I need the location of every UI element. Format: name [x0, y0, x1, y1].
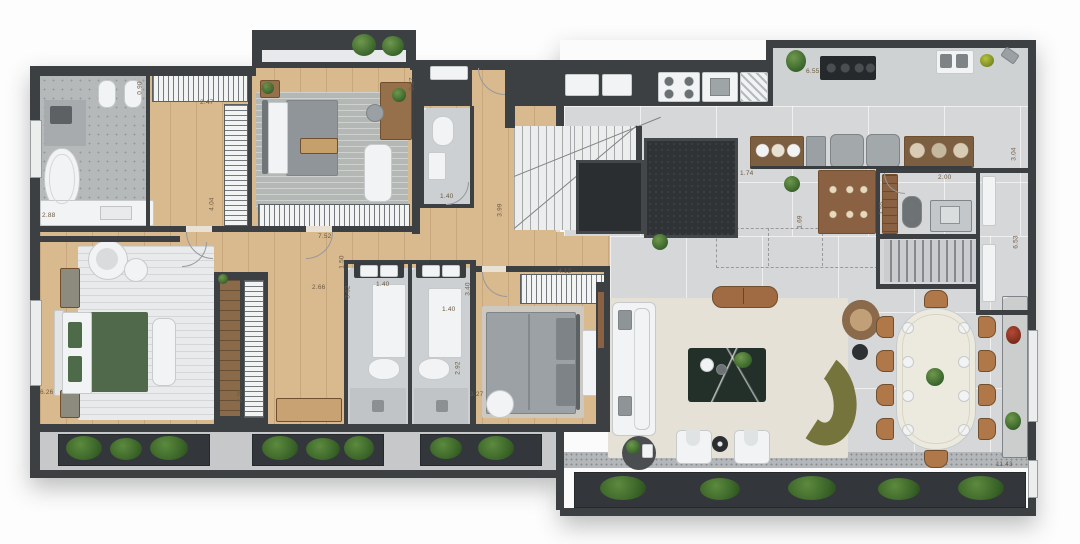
dimension-label: 3.27 — [470, 391, 483, 399]
bath-b-sink — [418, 358, 450, 380]
buffet-right — [904, 136, 974, 168]
wall-bath-hall — [146, 66, 150, 226]
bath-a-towels — [360, 265, 378, 277]
dimension-label: 6.26 — [40, 389, 53, 397]
balcony-bush — [110, 438, 142, 460]
bedroom2-foot-bench — [152, 318, 176, 386]
island-stool — [866, 134, 900, 168]
dimension-label: 0.90 — [137, 81, 145, 94]
balcony-bush — [344, 436, 374, 460]
tray-table-book — [642, 444, 653, 458]
console-flowers-red — [1006, 326, 1021, 344]
double-sink-basin-right — [956, 54, 968, 68]
side-table-black — [852, 344, 868, 360]
kitchen-tray-module — [565, 74, 599, 96]
bedroom2-pillow-green2 — [68, 356, 82, 382]
sofa-seat-line — [634, 308, 650, 430]
double-sink-basin-left — [940, 54, 952, 68]
balcony-plant — [382, 36, 404, 56]
dimension-label: 2.88 — [42, 212, 55, 220]
wall-wc-left — [420, 60, 424, 208]
dimension-label: 2.66 — [312, 284, 325, 292]
bath-b-drain — [436, 400, 448, 412]
coffee-table-plant — [734, 352, 752, 368]
buffet-cabinet — [806, 136, 826, 168]
bedroom1-throw — [300, 138, 338, 154]
window — [30, 300, 42, 386]
console-table — [1002, 296, 1028, 458]
hall-plant — [652, 234, 668, 250]
rack-module — [740, 72, 768, 102]
bidet — [98, 80, 116, 108]
armchair-notch — [744, 430, 758, 446]
dining-centerpiece — [926, 368, 944, 386]
dimension-label: 4.12 — [558, 268, 571, 276]
balcony-bush — [150, 436, 188, 460]
dining-chair — [924, 450, 948, 468]
outer-wall-bottom-right — [560, 508, 1036, 516]
bath-a-towels2 — [380, 265, 398, 277]
dimension-label: 3.40 — [465, 282, 473, 295]
balcony-bush — [430, 437, 462, 459]
wall-rooms-bottom — [38, 424, 610, 432]
buffet-left — [750, 136, 804, 168]
island-stool — [830, 134, 864, 168]
dining-chair — [924, 290, 948, 308]
sofa-cushion2 — [618, 396, 632, 416]
fruit-bowl — [980, 54, 994, 67]
bedroom3-pillows2 — [556, 364, 576, 406]
bedroom2-pillow-green — [68, 322, 82, 348]
outer-wall-bottom-left — [30, 470, 560, 478]
pantry-counter — [982, 176, 996, 226]
dining-chair — [876, 418, 894, 440]
dimension-label: 3.62 — [345, 285, 353, 298]
wall-hall-bedroom1 — [248, 66, 252, 228]
wall-pantry-bottom — [976, 310, 1028, 315]
outer-wall-top-right — [766, 40, 1036, 48]
bedroom3-wardrobe — [520, 274, 606, 304]
dimension-label: 7.52 — [318, 233, 331, 241]
dimension-label: 6.55 — [806, 68, 819, 76]
elevator-shaft-2 — [644, 138, 738, 238]
bedroom3-duvet-split — [528, 314, 530, 410]
desk-chair — [366, 104, 384, 122]
buffet-edge — [750, 166, 972, 169]
wall-bedroom2-top — [38, 236, 180, 242]
bedroom2-bed-duvet — [90, 312, 148, 392]
shower-bench — [50, 106, 72, 124]
corridor-plant — [784, 176, 800, 192]
bedroom1-bench — [364, 144, 392, 202]
desk-plant — [392, 88, 406, 102]
bedroom3-pillows — [556, 318, 576, 360]
coffee-table — [688, 348, 766, 402]
counter-plant — [786, 50, 806, 72]
wall-powder-bottom — [880, 234, 976, 239]
ottoman — [124, 258, 148, 282]
outer-wall-right — [1028, 40, 1036, 516]
coffee-table-tray — [700, 358, 714, 372]
console-flowers-green — [1005, 412, 1021, 430]
wall-service-bottom — [876, 284, 976, 289]
wall-bedroom1-right — [412, 66, 420, 234]
dimension-label: 3.99 — [497, 203, 505, 216]
window — [30, 120, 42, 178]
sideboard-split — [743, 288, 744, 304]
kitchen-tray-module2 — [602, 74, 632, 96]
dining-chair — [876, 350, 894, 372]
ceiling-projection — [716, 228, 878, 268]
dimension-label: 3.39 — [237, 389, 245, 402]
dining-chair — [978, 384, 996, 406]
stair-treads-left — [514, 126, 574, 230]
sideboard — [712, 286, 778, 308]
dining-chair — [876, 316, 894, 338]
dimension-label: 1.55 — [879, 201, 887, 214]
bedroom3-headboard — [576, 314, 580, 410]
wc-toilet — [432, 116, 454, 146]
bath-b-towels — [422, 265, 440, 277]
wall-bath-divider — [408, 260, 412, 428]
wall-bedroom3-right — [604, 272, 610, 428]
bath-a-vanity — [372, 284, 406, 358]
island-cooktop — [820, 56, 876, 80]
bath-a-drain — [372, 400, 384, 412]
wall-wc-right — [470, 106, 474, 208]
service-stairs — [884, 240, 976, 282]
wall-kitchen-left — [505, 60, 515, 128]
bedroom1-pillows — [268, 102, 288, 174]
master-vanity — [40, 200, 154, 226]
balcony-bush — [478, 436, 514, 460]
bathtub-inner — [49, 154, 75, 204]
balcony-bush — [306, 438, 340, 460]
terrace-bush — [788, 476, 836, 500]
walk-in-closet — [224, 104, 248, 226]
bedroom2-nightstand-top — [60, 268, 80, 308]
armchair-notch — [686, 430, 700, 446]
terrace-bush — [600, 476, 646, 500]
dimension-label: 1.40 — [440, 193, 453, 201]
wall-left-right-split-top — [556, 106, 564, 126]
laundry-counter — [982, 244, 996, 302]
side-table-between — [712, 436, 728, 452]
dimension-label: 1.69 — [797, 215, 805, 228]
dimension-label: 2.47 — [200, 99, 213, 107]
bedroom3-chair — [486, 390, 514, 418]
coffee-table-bowl — [716, 364, 727, 375]
balcony-bush — [262, 436, 298, 460]
dining-chair — [978, 418, 996, 440]
wardrobe-rail — [244, 280, 264, 418]
terrace-bush — [700, 478, 740, 500]
wc-sink — [428, 152, 446, 180]
dining-chair — [978, 350, 996, 372]
dimension-label: 1.40 — [376, 281, 389, 289]
window — [1028, 330, 1038, 422]
terrace-bush — [958, 476, 1004, 500]
dimension-label: 11.43 — [996, 461, 1013, 469]
outer-wall-top-left — [30, 66, 256, 76]
dimension-label: 9.75 — [260, 85, 273, 93]
terrace-bush — [878, 478, 920, 500]
elevator-shaft-1 — [576, 160, 644, 234]
balcony-bush — [66, 436, 102, 460]
dimension-label: 1.74 — [740, 170, 753, 178]
wall-pantry-left — [976, 168, 980, 314]
tray-table-plant — [626, 440, 640, 454]
dimension-label: 1.40 — [442, 306, 455, 314]
bath-a-sink — [368, 358, 400, 380]
dimension-label: 2.00 — [938, 174, 951, 182]
rattan-chair — [842, 300, 880, 340]
floor-plan: 2.88 0.90 2.47 9.75 4.04 3.27 7.52 1.50 … — [0, 0, 1080, 544]
dining-chair — [978, 316, 996, 338]
sofa-cushion — [618, 310, 632, 330]
entry-shelf — [430, 66, 468, 80]
cooktop-module — [658, 72, 700, 102]
ceiling-projection-line — [768, 228, 770, 266]
powder-sink — [940, 206, 960, 224]
dimension-label: 6.53 — [1013, 235, 1021, 248]
corridor-bench — [276, 398, 342, 422]
dimension-label: 3.27 — [409, 77, 417, 90]
bedroom2-nightstand-bottom — [60, 390, 80, 418]
dimension-label: 4.04 — [209, 197, 217, 210]
wall-left-right-split-bottom — [556, 430, 564, 510]
dimension-label: 1.50 — [339, 255, 347, 268]
powder-toilet — [902, 196, 922, 228]
wall-powder-left — [876, 168, 880, 286]
bath-b-vanity — [428, 288, 462, 358]
wall-suite-bottom — [38, 226, 418, 232]
dining-chair — [876, 384, 894, 406]
balcony-plant — [352, 34, 376, 56]
sink-basin — [710, 78, 730, 96]
bar-cabinet — [818, 170, 876, 234]
bath-b-towels2 — [442, 265, 460, 277]
wardrobe-plant — [218, 274, 228, 284]
dimension-label: 3.04 — [1011, 147, 1019, 160]
vanity-sink — [100, 206, 132, 220]
terrace-door — [1028, 460, 1038, 498]
round-lounge-chair-seat — [96, 248, 118, 270]
dimension-label: 2.92 — [455, 361, 463, 374]
